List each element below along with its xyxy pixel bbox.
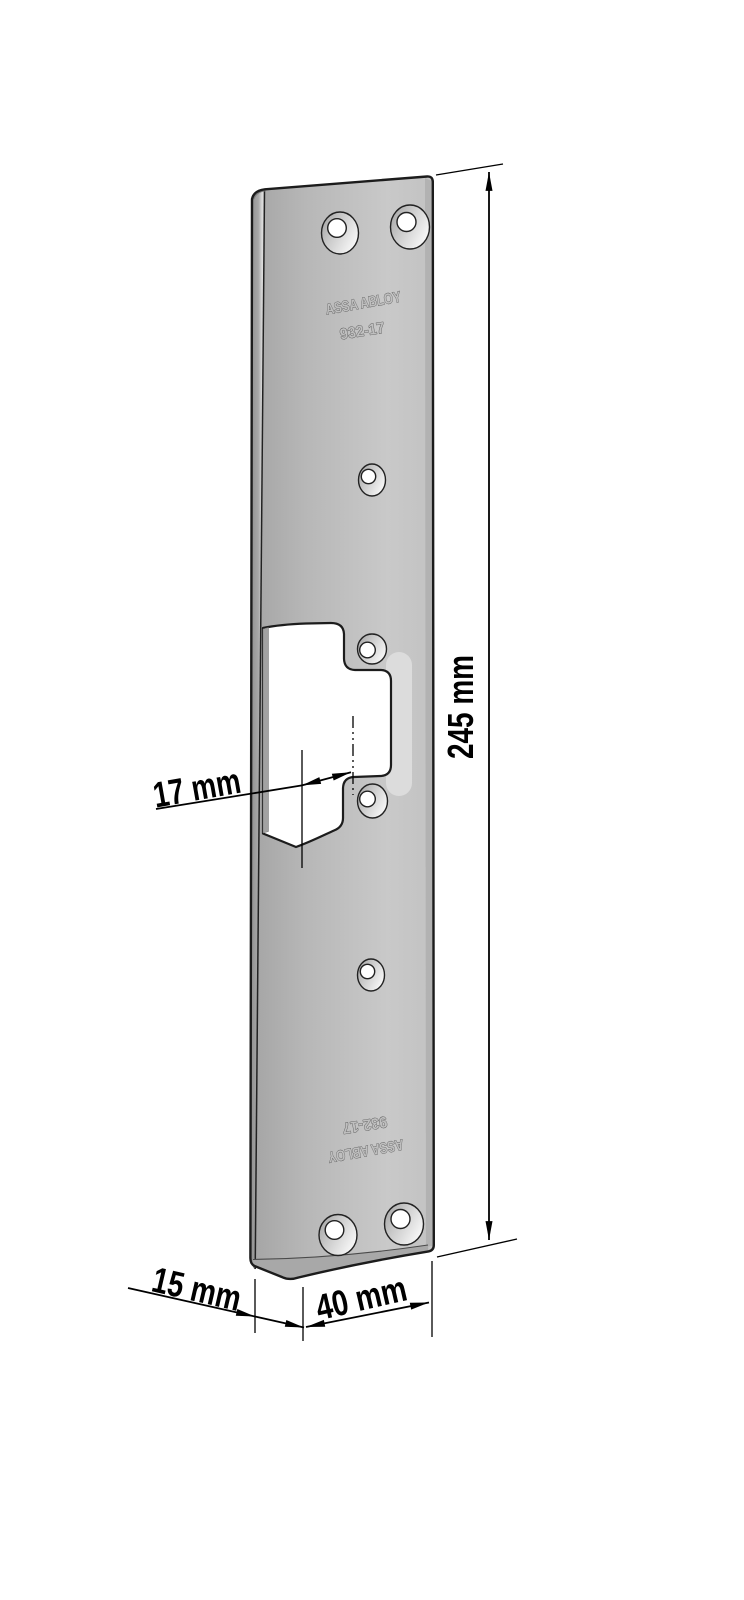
dim-label-face-width: 40 mm xyxy=(312,1267,411,1328)
screw-hole-cutout-top xyxy=(358,634,387,664)
dim-label-flange-depth: 15 mm xyxy=(148,1259,245,1319)
dim-label-height: 245 mm xyxy=(440,655,481,759)
screw-hole-upper-middle xyxy=(359,464,386,496)
dim-label-latch-offset: 17 mm xyxy=(150,760,244,816)
ext-line-height-top xyxy=(436,164,503,175)
screw-hole-top-left xyxy=(322,212,359,254)
strike-plate-body: ASSA ABLOY 932-17 932-17 ASSA ABLOY xyxy=(250,176,433,1278)
screw-hole-bottom-left xyxy=(319,1215,357,1256)
strike-plate-technical-drawing: ASSA ABLOY 932-17 932-17 ASSA ABLOY 245 … xyxy=(0,0,744,1600)
screw-hole-bottom-right xyxy=(385,1203,424,1245)
screw-hole-cutout-bottom xyxy=(358,784,388,818)
screw-hole-lower-middle xyxy=(358,959,385,991)
ext-line-height-bottom xyxy=(437,1239,517,1257)
screw-hole-top-right xyxy=(391,205,430,249)
cutout-left-sliver xyxy=(263,628,269,834)
dim-line-flange-depth xyxy=(255,1317,304,1328)
technical-drawing-canvas: ASSA ABLOY 932-17 932-17 ASSA ABLOY 245 … xyxy=(0,0,744,1600)
dimension-height: 245 mm xyxy=(436,164,517,1257)
